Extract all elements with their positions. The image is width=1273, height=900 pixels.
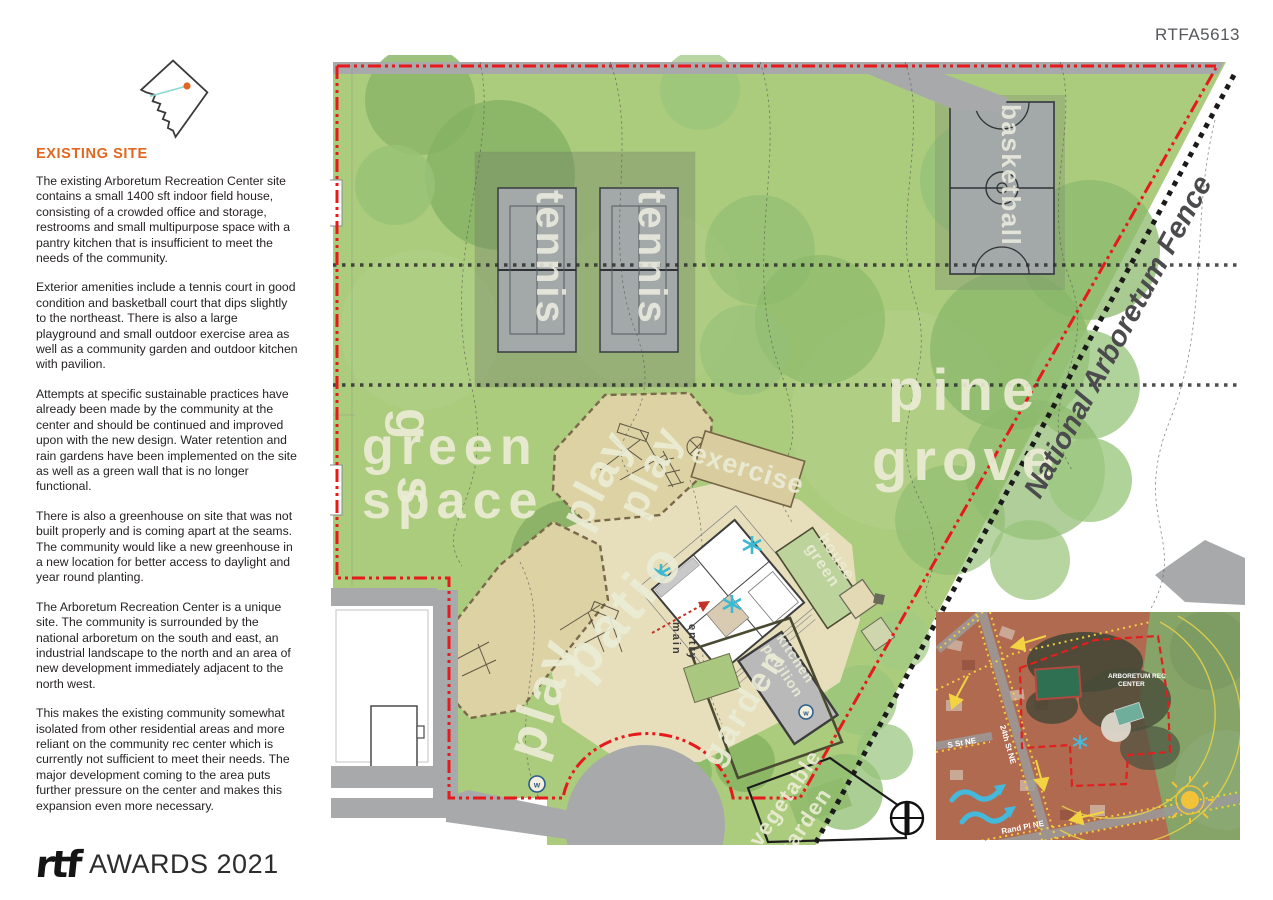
awards-logo: rtf AWARDS 2021 <box>36 846 279 883</box>
site-plan: exercise <box>330 55 1245 845</box>
green-space-vertical-fragment: g <box>384 408 442 440</box>
inset-site-label: ARBORETUM REC <box>1108 673 1166 680</box>
basketball-label: basketball <box>996 104 1026 246</box>
section-heading: EXISTING SITE <box>36 146 298 162</box>
aerial-inset: ARBORETUM REC CENTER S St NE 24th St NE … <box>936 604 1245 845</box>
dc-boundary-shape <box>141 61 207 137</box>
inset-site-label: CENTER <box>1118 681 1145 688</box>
board-code: RTFA5613 <box>1155 25 1240 45</box>
body-paragraph: The Arboretum Recreation Center is a uni… <box>36 600 298 692</box>
dc-map-icon <box>132 58 214 142</box>
svg-text:w: w <box>802 711 809 718</box>
dc-map-locator <box>36 58 298 142</box>
body-paragraph: Attempts at specific sustainable practic… <box>36 387 298 495</box>
site-location-dot <box>183 82 190 89</box>
svg-text:w: w <box>533 781 541 790</box>
sidebar: EXISTING SITE The existing Arboretum Rec… <box>36 58 298 828</box>
green-space-vertical-fragment: s <box>386 476 444 505</box>
presentation-board: RTFA5613 EXISTING SITE The existing Arbo… <box>0 0 1273 900</box>
tennis-label: tennis <box>630 190 674 326</box>
rtf-logo-icon: rtf <box>34 846 81 883</box>
body-paragraph: This makes the existing community somewh… <box>36 706 298 814</box>
awards-label: AWARDS 2021 <box>89 849 279 880</box>
pine-grove-label: pine <box>888 358 1043 423</box>
north-arrow-icon <box>891 802 923 834</box>
body-paragraph: There is also a greenhouse on site that … <box>36 509 298 586</box>
body-paragraph: The existing Arboretum Recreation Center… <box>36 174 298 266</box>
tennis-label: tennis <box>528 190 572 326</box>
body-paragraph: Exterior amenities include a tennis cour… <box>36 280 298 372</box>
main-entry-label: main <box>670 622 682 656</box>
main-entry-label: entry <box>686 624 698 661</box>
